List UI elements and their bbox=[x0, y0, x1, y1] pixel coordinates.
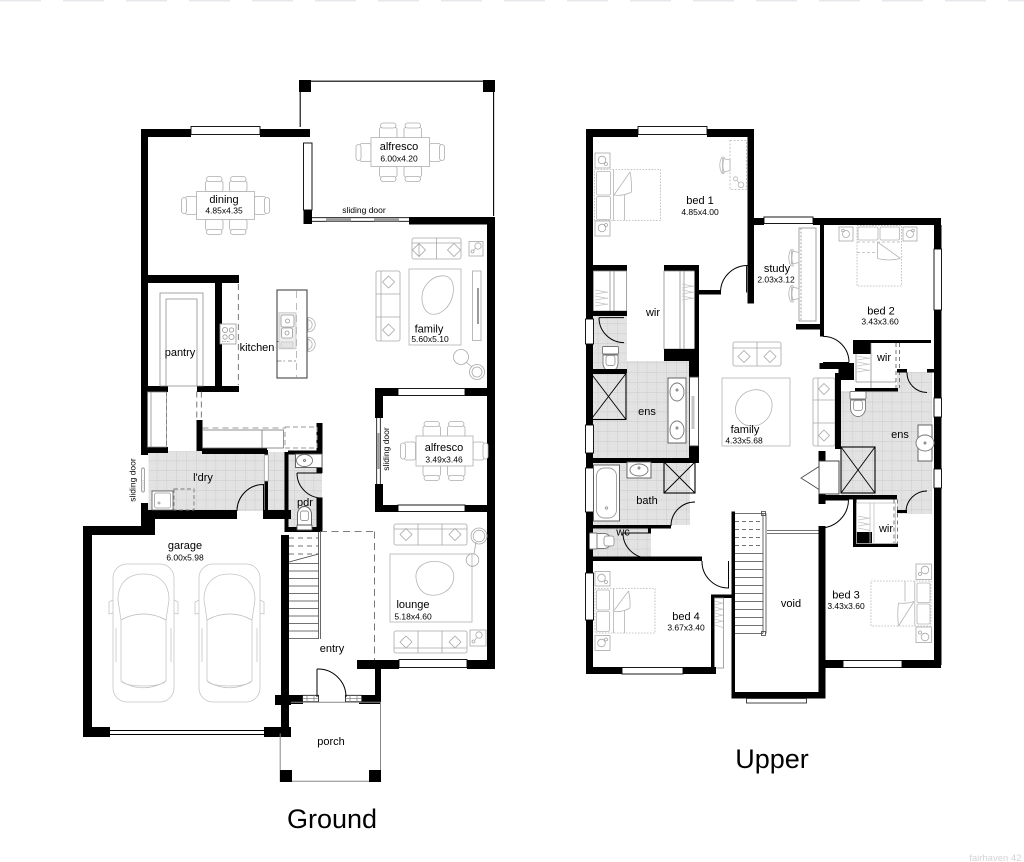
svg-text:entry: entry bbox=[320, 643, 345, 655]
svg-text:ens: ens bbox=[891, 429, 909, 441]
svg-text:l'dry: l'dry bbox=[193, 472, 213, 484]
svg-text:Upper: Upper bbox=[735, 744, 809, 774]
svg-text:2.03x3.12: 2.03x3.12 bbox=[757, 275, 795, 285]
svg-text:kitchen: kitchen bbox=[240, 342, 275, 354]
svg-text:fairhaven 42: fairhaven 42 bbox=[969, 853, 1021, 862]
svg-text:alfresco: alfresco bbox=[380, 141, 419, 153]
svg-text:wir: wir bbox=[876, 352, 891, 364]
svg-text:3.49x3.46: 3.49x3.46 bbox=[425, 455, 463, 465]
svg-text:alfresco: alfresco bbox=[425, 442, 464, 454]
svg-text:family: family bbox=[731, 424, 760, 436]
svg-text:study: study bbox=[764, 263, 791, 275]
svg-text:5.60x5.10: 5.60x5.10 bbox=[411, 334, 449, 344]
svg-text:bath: bath bbox=[636, 495, 657, 507]
svg-text:void: void bbox=[781, 598, 801, 610]
svg-text:garage: garage bbox=[168, 540, 202, 552]
svg-text:wir: wir bbox=[878, 523, 893, 535]
svg-text:wir: wir bbox=[645, 307, 660, 319]
svg-text:5.18x4.60: 5.18x4.60 bbox=[394, 612, 432, 622]
svg-text:4.85x4.35: 4.85x4.35 bbox=[205, 206, 243, 216]
svg-text:sliding door: sliding door bbox=[381, 427, 391, 471]
svg-text:bed 3: bed 3 bbox=[832, 590, 860, 602]
svg-text:3.43x3.60: 3.43x3.60 bbox=[861, 317, 899, 327]
svg-text:3.43x3.60: 3.43x3.60 bbox=[827, 601, 865, 611]
svg-text:bed 4: bed 4 bbox=[672, 611, 700, 623]
svg-text:dining: dining bbox=[209, 194, 238, 206]
svg-text:6.00x5.98: 6.00x5.98 bbox=[166, 553, 204, 563]
svg-text:4.85x4.00: 4.85x4.00 bbox=[681, 207, 719, 217]
svg-text:3.67x3.40: 3.67x3.40 bbox=[667, 623, 705, 633]
svg-text:Ground: Ground bbox=[287, 804, 377, 834]
svg-text:bed 1: bed 1 bbox=[686, 195, 714, 207]
svg-text:pantry: pantry bbox=[165, 347, 196, 359]
svg-text:6.00x4.20: 6.00x4.20 bbox=[380, 154, 418, 164]
svg-text:sliding door: sliding door bbox=[128, 458, 138, 502]
svg-text:porch: porch bbox=[317, 736, 345, 748]
svg-text:lounge: lounge bbox=[396, 599, 429, 611]
svg-text:4.33x5.68: 4.33x5.68 bbox=[725, 436, 763, 446]
svg-text:pdr: pdr bbox=[297, 497, 313, 509]
svg-text:sliding door: sliding door bbox=[342, 205, 386, 215]
svg-text:ens: ens bbox=[638, 406, 656, 418]
